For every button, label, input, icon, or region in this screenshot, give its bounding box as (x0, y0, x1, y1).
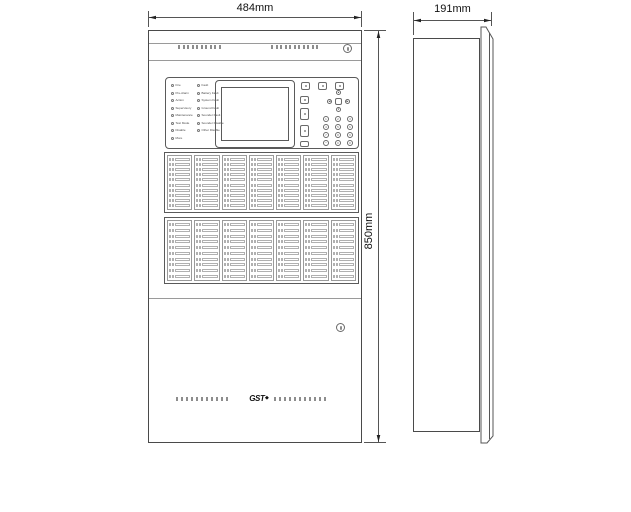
zone-led-bank-1 (164, 152, 359, 213)
zone-led-icon (169, 173, 171, 176)
zone-led-icon (278, 246, 280, 249)
zone-led-icon (224, 194, 226, 197)
digit-key-5[interactable]: 5 (335, 124, 341, 130)
digit-key-1[interactable]: 1 (323, 116, 329, 122)
ok-key[interactable] (335, 98, 342, 105)
zone-row (305, 274, 326, 278)
zone-row (251, 240, 272, 244)
vent-slot (211, 397, 213, 401)
zone-row (333, 234, 354, 238)
zone-led-icon (169, 204, 171, 207)
zone-row (251, 199, 272, 203)
zone-led-icon (251, 263, 253, 266)
zone-led-icon (169, 223, 171, 226)
zone-row (333, 178, 354, 182)
zone-column (331, 155, 356, 210)
zone-led-icon (251, 252, 253, 255)
zone-row (251, 257, 272, 261)
zone-label-window (230, 275, 245, 278)
zone-led-icon (308, 269, 310, 272)
zone-led-icon (278, 275, 280, 278)
zone-led-icon (224, 223, 226, 226)
zone-label-window (202, 199, 217, 202)
zone-label-window (202, 263, 217, 266)
zone-led-icon (308, 258, 310, 261)
zone-led-icon (305, 204, 307, 207)
digit-key-4[interactable]: 4 (323, 124, 329, 130)
zone-led-icon (308, 168, 310, 171)
zone-led-icon (196, 158, 198, 161)
zone-row (278, 194, 299, 198)
zone-label-window (202, 173, 217, 176)
digit-key-3[interactable]: 3 (347, 116, 353, 122)
zone-led-icon (281, 168, 283, 171)
led-label: More (176, 137, 183, 140)
side-view-body (413, 38, 480, 432)
vent-strip-line (149, 60, 361, 61)
zone-led-icon (251, 189, 253, 192)
zone-label-window (175, 258, 190, 261)
zone-led-icon (254, 263, 256, 266)
zone-led-icon (333, 184, 335, 187)
vent-slot (221, 397, 223, 401)
zone-row (333, 263, 354, 267)
zone-label-window (175, 275, 190, 278)
zone-led-icon (169, 229, 171, 232)
vent-slot (319, 397, 321, 401)
zone-row (305, 251, 326, 255)
zone-label-window (339, 235, 354, 238)
digit-key-#[interactable]: # (347, 140, 353, 146)
brand-logo: GST ◆ (246, 393, 272, 403)
digit-key-9[interactable]: 9 (347, 132, 353, 138)
zone-led-icon (336, 163, 338, 166)
led-indicator: Pre-Alarm (171, 91, 193, 96)
front-view-cabinet: FirePre-AlarmActionSupervisoryMaintenanc… (148, 30, 362, 443)
zone-led-icon (172, 173, 174, 176)
zone-led-icon (251, 246, 253, 249)
zone-label-window (311, 204, 326, 207)
zone-row (196, 173, 217, 177)
zone-row (333, 204, 354, 208)
zone-led-icon (196, 168, 198, 171)
zone-led-icon (281, 204, 283, 207)
zone-led-icon (172, 235, 174, 238)
zone-column (276, 220, 301, 281)
digit-key-7[interactable]: 7 (323, 132, 329, 138)
zone-label-window (230, 184, 245, 187)
zone-row (278, 263, 299, 267)
arrow-up-key[interactable]: ▲ (336, 90, 341, 95)
zone-led-icon (278, 269, 280, 272)
zone-label-window (284, 168, 299, 171)
zone-led-icon (305, 229, 307, 232)
vent-slot (271, 45, 273, 49)
zone-row (278, 178, 299, 182)
zone-label-window (230, 263, 245, 266)
zone-led-icon (169, 246, 171, 249)
zone-led-icon (224, 173, 226, 176)
zone-led-icon (305, 240, 307, 243)
zone-led-icon (333, 269, 335, 272)
zone-row (224, 183, 245, 187)
zone-led-icon (278, 240, 280, 243)
zone-led-icon (336, 252, 338, 255)
arrow-down-key[interactable]: ▼ (336, 107, 341, 112)
zone-led-icon (251, 158, 253, 161)
zone-led-icon (169, 178, 171, 181)
zone-led-icon (251, 223, 253, 226)
zone-label-window (257, 229, 272, 232)
zone-led-icon (278, 263, 280, 266)
zone-led-icon (305, 246, 307, 249)
led-label: Maintenance (176, 114, 193, 117)
zone-label-window (339, 163, 354, 166)
led-label: Supervisory (176, 107, 192, 110)
zone-row (278, 183, 299, 187)
zone-row (169, 173, 190, 177)
evacuate-key[interactable] (300, 125, 309, 137)
zone-row (169, 269, 190, 273)
led-dot-icon (171, 122, 174, 125)
zone-row (305, 158, 326, 162)
zone-row (305, 234, 326, 238)
zone-row (196, 228, 217, 232)
zone-column (331, 220, 356, 281)
zone-row (305, 257, 326, 261)
zone-row (224, 158, 245, 162)
zone-led-icon (254, 168, 256, 171)
led-dot-icon (171, 137, 174, 140)
vent-slot (183, 45, 185, 49)
zone-label-window (175, 173, 190, 176)
vent-slot (187, 45, 189, 49)
zone-row (224, 269, 245, 273)
zone-label-window (257, 252, 272, 255)
digit-key-8[interactable]: 8 (335, 132, 341, 138)
zone-led-icon (305, 163, 307, 166)
zone-led-icon (333, 263, 335, 266)
zone-label-window (202, 229, 217, 232)
zone-led-icon (172, 240, 174, 243)
zone-led-icon (308, 163, 310, 166)
zone-row (169, 168, 190, 172)
digit-key-6[interactable]: 6 (347, 124, 353, 130)
digit-key-2[interactable]: 2 (335, 116, 341, 122)
zone-led-icon (305, 184, 307, 187)
zone-label-window (230, 158, 245, 161)
zone-led-icon (196, 246, 198, 249)
vent-slot (192, 45, 194, 49)
esc-key[interactable] (300, 141, 309, 147)
zone-row (278, 204, 299, 208)
zone-led-icon (278, 184, 280, 187)
zone-led-icon (278, 178, 280, 181)
zone-label-window (339, 223, 354, 226)
zone-row (278, 188, 299, 192)
zone-label-window (284, 246, 299, 249)
zone-label-window (230, 240, 245, 243)
zone-label-window (257, 235, 272, 238)
vent-slot (186, 397, 188, 401)
zone-led-icon (224, 235, 226, 238)
zone-row (333, 223, 354, 227)
zone-row (251, 223, 272, 227)
zone-led-icon (251, 178, 253, 181)
zone-label-window (175, 199, 190, 202)
led-dot-icon (197, 84, 200, 87)
vent-slot (216, 397, 218, 401)
zone-led-icon (169, 269, 171, 272)
zone-label-window (284, 258, 299, 261)
zone-led-icon (305, 223, 307, 226)
zone-led-icon (281, 263, 283, 266)
zone-led-icon (172, 194, 174, 197)
zone-label-window (311, 240, 326, 243)
zone-led-icon (199, 263, 201, 266)
zone-led-icon (196, 258, 198, 261)
zone-row (251, 168, 272, 172)
zone-row (305, 188, 326, 192)
zone-label-window (230, 178, 245, 181)
zone-label-window (202, 246, 217, 249)
zone-led-icon (308, 240, 310, 243)
zone-led-icon (281, 184, 283, 187)
zone-row (278, 163, 299, 167)
zone-label-window (175, 189, 190, 192)
zone-led-icon (254, 204, 256, 207)
zone-label-window (175, 229, 190, 232)
function-key-3[interactable] (335, 82, 344, 90)
zone-led-icon (169, 163, 171, 166)
zone-led-icon (251, 229, 253, 232)
vent-group-top-right (271, 45, 318, 49)
vent-slot (289, 397, 291, 401)
zone-led-icon (172, 158, 174, 161)
zone-led-icon (305, 168, 307, 171)
zone-led-icon (172, 252, 174, 255)
dimension-front-height: 850mm (363, 206, 375, 256)
zone-led-icon (224, 229, 226, 232)
zone-led-icon (254, 189, 256, 192)
zone-led-icon (333, 258, 335, 261)
zone-row (196, 257, 217, 261)
zone-row (333, 194, 354, 198)
zone-row (169, 251, 190, 255)
zone-row (224, 257, 245, 261)
zone-row (305, 263, 326, 267)
zone-led-icon (305, 275, 307, 278)
zone-led-icon (224, 240, 226, 243)
vent-slot (178, 45, 180, 49)
zone-led-icon (227, 235, 229, 238)
vent-slot (312, 45, 314, 49)
zone-row (169, 257, 190, 261)
zone-row (278, 240, 299, 244)
zone-label-window (202, 194, 217, 197)
zone-row (305, 246, 326, 250)
zone-row (196, 163, 217, 167)
zone-row (278, 158, 299, 162)
zone-led-icon (227, 173, 229, 176)
zone-row (169, 163, 190, 167)
vent-group-top-left (178, 45, 221, 49)
zone-led-icon (172, 258, 174, 261)
zone-row (169, 204, 190, 208)
zone-led-icon (196, 189, 198, 192)
zone-label-window (311, 246, 326, 249)
zone-label-window (202, 178, 217, 181)
zone-led-icon (281, 235, 283, 238)
zone-led-icon (196, 223, 198, 226)
zone-label-window (311, 258, 326, 261)
led-indicator: Fire (171, 83, 193, 88)
zone-row (196, 188, 217, 192)
lock-icon[interactable] (343, 44, 352, 53)
zone-label-window (202, 184, 217, 187)
zone-row (251, 274, 272, 278)
vent-slot (316, 45, 318, 49)
zone-label-window (339, 275, 354, 278)
led-dot-icon (171, 107, 174, 110)
brand-logo-text: GST (249, 394, 264, 403)
zone-led-icon (254, 275, 256, 278)
zone-row (278, 274, 299, 278)
zone-led-icon (336, 235, 338, 238)
zone-led-icon (251, 240, 253, 243)
vent-slot (289, 45, 291, 49)
led-dot-icon (171, 114, 174, 117)
vent-group-bottom-right (274, 397, 326, 401)
led-indicator: Test Mode (171, 121, 193, 126)
digit-key-*[interactable]: * (323, 140, 329, 146)
zone-label-window (175, 194, 190, 197)
zone-label-window (230, 199, 245, 202)
zone-label-window (202, 235, 217, 238)
zone-label-window (257, 163, 272, 166)
zone-row (278, 251, 299, 255)
zone-label-window (257, 223, 272, 226)
led-dot-icon (171, 92, 174, 95)
arrow-right-key[interactable]: ▶ (345, 99, 350, 104)
zone-led-icon (254, 158, 256, 161)
mute-key[interactable] (300, 108, 309, 120)
zone-row (305, 240, 326, 244)
zone-row (224, 188, 245, 192)
vent-slot (201, 45, 203, 49)
zone-row (305, 194, 326, 198)
zone-row (224, 178, 245, 182)
zone-row (333, 168, 354, 172)
zone-led-icon (196, 204, 198, 207)
zone-led-icon (336, 194, 338, 197)
zone-label-window (339, 269, 354, 272)
zone-row (169, 188, 190, 192)
zone-label-window (339, 199, 354, 202)
zone-led-icon (281, 246, 283, 249)
zone-led-icon (172, 189, 174, 192)
function-key-2[interactable] (318, 82, 327, 90)
zone-led-icon (333, 189, 335, 192)
zone-label-window (284, 204, 299, 207)
top-seam-line (149, 43, 361, 44)
zone-row (224, 223, 245, 227)
engineering-drawing: 484mm 850mm 191mm FirePre-AlarmActionSup… (0, 0, 631, 512)
door-seam-line (149, 298, 361, 299)
zone-label-window (311, 194, 326, 197)
zone-row (169, 194, 190, 198)
door-lock-icon[interactable] (336, 323, 345, 332)
zone-label-window (257, 158, 272, 161)
zone-led-icon (199, 194, 201, 197)
zone-led-icon (251, 258, 253, 261)
zone-label-window (230, 235, 245, 238)
zone-led-icon (254, 229, 256, 232)
zone-label-window (311, 199, 326, 202)
led-dot-icon (197, 92, 200, 95)
zone-label-window (202, 204, 217, 207)
zone-label-window (311, 263, 326, 266)
zone-led-icon (199, 275, 201, 278)
vent-slot (201, 397, 203, 401)
zone-row (333, 188, 354, 192)
zone-led-icon (336, 246, 338, 249)
zone-row (224, 168, 245, 172)
zone-led-icon (224, 263, 226, 266)
function-key-1[interactable] (301, 82, 310, 90)
zone-row (305, 228, 326, 232)
zone-led-icon (172, 229, 174, 232)
menu-key[interactable] (300, 96, 309, 104)
zone-led-icon (224, 246, 226, 249)
zone-row (333, 257, 354, 261)
zone-led-icon (305, 178, 307, 181)
zone-led-icon (281, 189, 283, 192)
zone-column (222, 220, 247, 281)
arrow-left-key[interactable]: ◀ (327, 99, 332, 104)
zone-row (224, 240, 245, 244)
zone-led-icon (172, 204, 174, 207)
zone-led-icon (336, 173, 338, 176)
zone-led-icon (281, 258, 283, 261)
zone-led-icon (196, 235, 198, 238)
zone-led-icon (254, 173, 256, 176)
zone-label-window (175, 158, 190, 161)
zone-row (251, 173, 272, 177)
led-column-a: FirePre-AlarmActionSupervisoryMaintenanc… (171, 83, 193, 141)
vent-slot (324, 397, 326, 401)
vent-slot (276, 45, 278, 49)
zone-row (169, 183, 190, 187)
zone-led-icon (169, 199, 171, 202)
zone-label-window (202, 158, 217, 161)
zone-label-window (311, 173, 326, 176)
zone-led-icon (305, 235, 307, 238)
zone-label-window (311, 223, 326, 226)
zone-label-window (257, 194, 272, 197)
zone-led-icon (308, 246, 310, 249)
zone-led-icon (196, 240, 198, 243)
zone-led-icon (251, 275, 253, 278)
zone-led-icon (336, 229, 338, 232)
vent-slot (299, 397, 301, 401)
digit-key-0[interactable]: 0 (335, 140, 341, 146)
zone-led-icon (227, 189, 229, 192)
zone-led-icon (254, 269, 256, 272)
zone-label-window (175, 240, 190, 243)
zone-label-window (202, 189, 217, 192)
zone-led-icon (227, 199, 229, 202)
